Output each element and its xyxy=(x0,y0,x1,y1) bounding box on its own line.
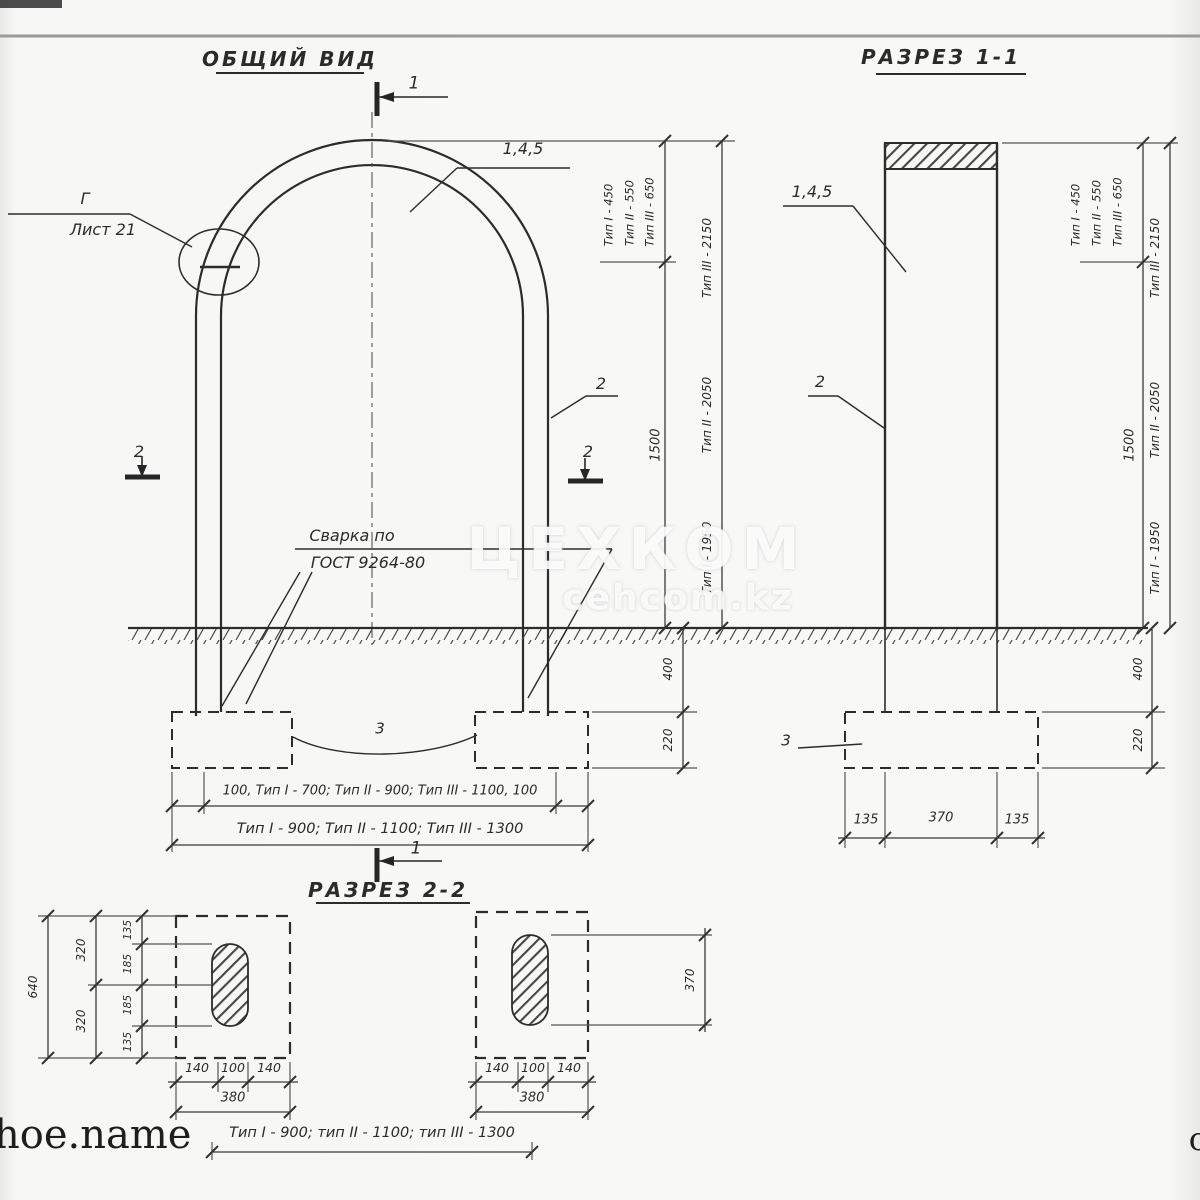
s1-parts-top-label: 1,4,5 xyxy=(792,184,833,200)
detail-sheet-label: Лист 21 xyxy=(70,222,136,238)
s2-right-slot-len: 370 xyxy=(684,969,696,992)
s2-left-mid-v-1: 320 xyxy=(75,939,87,962)
gv-dim-below-ground: 400 xyxy=(662,658,674,681)
s2-right-bottom-3: 140 xyxy=(557,1062,581,1075)
cut-marker-1-top-label: 1 xyxy=(409,76,420,93)
weld-note-line1: Сварка по xyxy=(309,528,394,544)
s2-left-total-v: 640 xyxy=(27,976,39,999)
s1-dim-arc-type3: Тип III - 650 xyxy=(1112,177,1124,246)
s1-dim-arc-type2: Тип II - 550 xyxy=(1091,180,1103,246)
drawing-sheet: ОБЩИЙ ВИД РАЗРЕЗ 1-1 РАЗРЕЗ 2-2 1 1 2 2 … xyxy=(0,0,1200,1200)
detail-circle xyxy=(179,229,259,295)
gv-bottom-dim-inner: 100, Тип I - 700; Тип II - 900; Тип III … xyxy=(223,785,538,798)
watermark-brand: ЦЕХКОМ xyxy=(467,515,808,583)
s1-dim-foundation-h: 220 xyxy=(1132,729,1144,752)
s2-type-note: Тип I - 900; тип II - 1100; тип III - 13… xyxy=(229,1126,515,1141)
plan-right-slot xyxy=(512,935,548,1025)
cut-marker-2-right-label: 2 xyxy=(583,444,593,460)
watermark-corner-left: hoe.name xyxy=(0,1112,191,1158)
title-general-view: ОБЩИЙ ВИД xyxy=(202,49,378,69)
title-section-2-2: РАЗРЕЗ 2-2 xyxy=(308,880,468,900)
s1-dim-total-type1: Тип I - 1950 xyxy=(1149,522,1161,595)
watermark-corner-right: о xyxy=(1189,1120,1200,1158)
s2-right-bottom-2: 100 xyxy=(521,1062,545,1075)
detail-ref-label: Г xyxy=(81,191,90,207)
s1-part-post-label: 2 xyxy=(815,374,825,390)
gv-part-foundation-label: 3 xyxy=(375,722,385,737)
gv-parts-arc-label: 1,4,5 xyxy=(503,141,544,157)
general-view-arch xyxy=(179,112,548,716)
s2-left-bottom-3: 140 xyxy=(257,1062,281,1075)
s1-dim-total-type3: Тип III - 2150 xyxy=(1149,218,1161,298)
section1-foundation xyxy=(845,712,1038,768)
gv-dim-arc-type3: Тип III - 650 xyxy=(644,177,656,246)
s1-part-foundation-label: 3 xyxy=(781,734,791,749)
foundation-leader xyxy=(293,735,477,754)
column-cap-hatched xyxy=(885,143,997,169)
s2-left-inner-v-4: 135 xyxy=(123,1032,134,1052)
gv-dim-foundation-h: 220 xyxy=(662,729,674,752)
section2-plans xyxy=(176,912,588,1058)
s2-right-bottom-total: 380 xyxy=(520,1092,545,1105)
s2-left-mid-v-2: 320 xyxy=(75,1010,87,1033)
gv-dim-post-height: 1500 xyxy=(650,428,663,461)
s1-dim-total-type2: Тип II - 2050 xyxy=(1149,382,1161,458)
cut-marker-1-bottom-label: 1 xyxy=(411,841,422,858)
s2-right-bottom-1: 140 xyxy=(485,1062,509,1075)
s1-dim-right: 135 xyxy=(1005,814,1030,827)
section1-column xyxy=(845,143,1038,768)
plan-left-slot xyxy=(212,944,248,1026)
gv-dim-total-type3: Тип III - 2150 xyxy=(701,218,713,298)
s2-left-bottom-total: 380 xyxy=(221,1092,246,1105)
s1-dim-post-height: 1500 xyxy=(1124,428,1137,461)
s2-left-inner-v-3: 185 xyxy=(123,995,134,1015)
s2-left-inner-v-2: 185 xyxy=(123,954,134,974)
scan-artifacts xyxy=(0,0,1200,36)
s1-dim-mid: 370 xyxy=(929,812,954,825)
gv-dim-arc-type1: Тип I - 450 xyxy=(603,184,615,246)
s2-left-bottom-2: 100 xyxy=(221,1062,245,1075)
s2-left-bottom-1: 140 xyxy=(185,1062,209,1075)
s1-dim-left: 135 xyxy=(854,814,879,827)
s1-dim-below-ground: 400 xyxy=(1132,658,1144,681)
cut-marker-2-left-label: 2 xyxy=(134,444,144,460)
gv-dim-arc-type2: Тип II - 550 xyxy=(624,180,636,246)
watermark-site: cehcom.kz xyxy=(562,578,794,619)
s1-dim-arc-type1: Тип I - 450 xyxy=(1070,184,1082,246)
gv-dim-total-type2: Тип II - 2050 xyxy=(701,377,713,453)
gv-part-post-label: 2 xyxy=(596,376,606,392)
title-underlines xyxy=(216,73,1026,903)
gv-bottom-dim-outer: Тип I - 900; Тип II - 1100; Тип III - 13… xyxy=(237,822,524,837)
ground-line xyxy=(128,628,1148,644)
weld-note-line2: ГОСТ 9264-80 xyxy=(311,555,425,571)
title-section-1-1: РАЗРЕЗ 1-1 xyxy=(861,47,1021,67)
s2-left-inner-v-1: 135 xyxy=(123,920,134,940)
